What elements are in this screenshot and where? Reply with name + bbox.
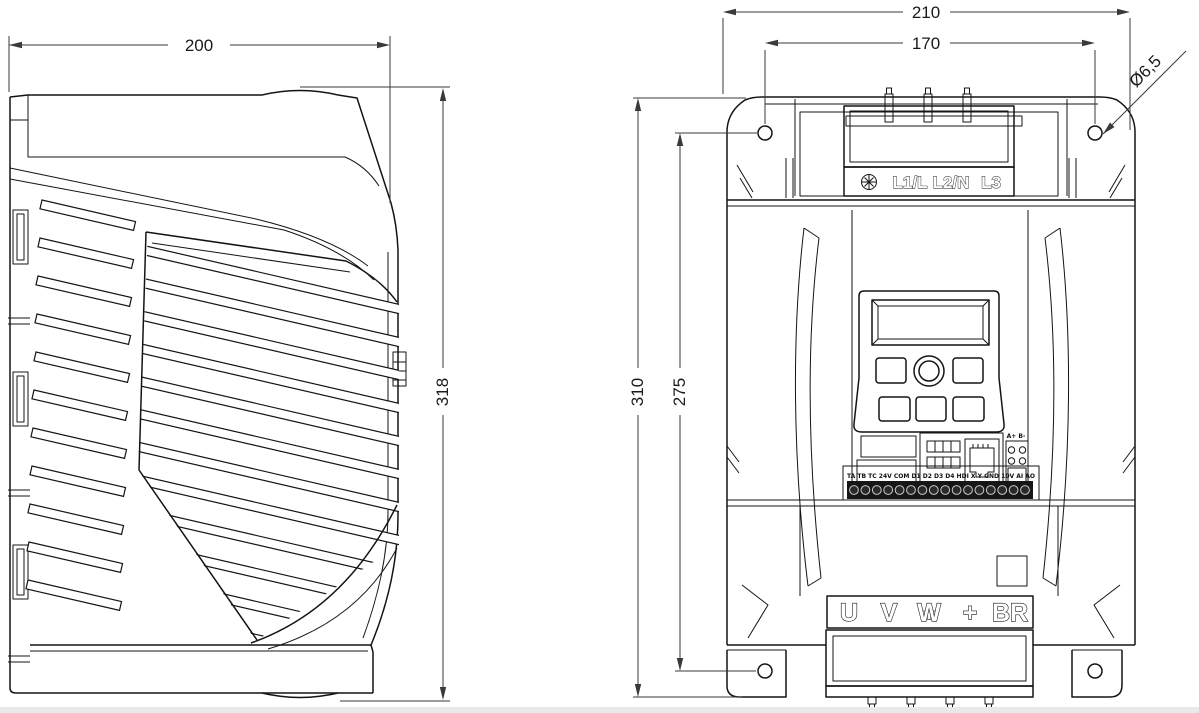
side-cover-seam <box>28 95 379 186</box>
control-terminal-strip: TA TB TC 24V COM D1 D2 D3 D4 HDI X Y GND… <box>843 466 1039 500</box>
ground-symbol-icon <box>862 175 877 190</box>
mounting-tab-bottom-left <box>727 650 786 697</box>
mounting-hole-top-right <box>1088 126 1102 140</box>
side-top-edge <box>10 95 262 97</box>
output-terminal-cover-inner <box>833 636 1026 681</box>
jumper-block-1 <box>861 436 916 457</box>
keypad-button-right <box>953 358 983 383</box>
front-lower-channels <box>800 506 1058 596</box>
keypad-module <box>852 210 1028 497</box>
side-view <box>8 91 406 711</box>
side-swoosh-2 <box>268 548 397 649</box>
label-BR: BR <box>992 599 1028 627</box>
side-top-bump <box>262 91 338 96</box>
mounting-tab-bottom-right <box>1072 650 1122 697</box>
front-terminal-recess <box>800 112 1058 196</box>
dim-hole-spacing-v: 275 <box>670 378 689 406</box>
keypad-button-b2 <box>916 397 946 421</box>
mounting-hole-top-left <box>758 126 772 140</box>
front-view: L1/L L2/N L3 <box>727 88 1135 709</box>
side-base-top <box>30 645 373 693</box>
side-clips <box>8 210 30 662</box>
keypad-knob-inner <box>919 361 939 381</box>
input-terminal-cover <box>844 106 1014 167</box>
label-L2: L2/N <box>933 173 970 192</box>
page-bottom-edge <box>0 707 1199 713</box>
dim-hole-diameter: Ø6,5 <box>1126 52 1165 91</box>
comm-terminal-block <box>1006 441 1028 487</box>
mounting-hole-bottom-right <box>1088 664 1102 678</box>
input-terminal-cover-inner <box>850 111 1008 162</box>
label-plus: + <box>963 599 978 627</box>
nameplate-square <box>997 556 1027 586</box>
output-terminal-cover <box>826 630 1033 686</box>
label-V: V <box>881 599 898 627</box>
dim-side-width: 200 <box>185 36 213 55</box>
label-W: W <box>917 599 941 627</box>
label-L3: L3 <box>981 173 1001 192</box>
mounting-hole-bottom-left <box>758 664 772 678</box>
front-ear-edges <box>795 99 1067 196</box>
dim-hole-spacing-h: 170 <box>912 34 940 53</box>
label-L1: L1/L <box>893 173 928 192</box>
front-top-rail <box>846 116 1022 126</box>
front-body-outline <box>727 97 1135 645</box>
keypad-display <box>872 300 989 345</box>
dip-switches <box>927 441 960 468</box>
keypad-button-left <box>876 358 906 383</box>
dimension-drawing: L1/L L2/N L3 <box>0 0 1199 713</box>
dim-front-height: 310 <box>628 378 647 406</box>
front-ear-slots <box>786 158 1076 198</box>
control-terminal-labels: TA TB TC 24V COM D1 D2 D3 D4 HDI X Y GND… <box>847 473 1035 480</box>
technical-drawing-page: L1/L L2/N L3 <box>0 0 1199 713</box>
comm-terminal-label: A+ B- <box>1007 433 1026 440</box>
front-top-prongs <box>885 88 971 122</box>
display-chamfers <box>872 300 989 345</box>
keypad-panel-edges <box>852 210 1028 497</box>
side-vent-slats-left <box>26 200 136 610</box>
dim-front-width: 210 <box>912 3 940 22</box>
label-U: U <box>840 599 858 627</box>
keypad-display-inner <box>878 306 983 339</box>
dim-side-height: 318 <box>433 378 452 406</box>
output-bottom-rail <box>826 686 1033 697</box>
keypad-button-b1 <box>879 397 910 421</box>
keypad-button-b3 <box>953 397 984 421</box>
